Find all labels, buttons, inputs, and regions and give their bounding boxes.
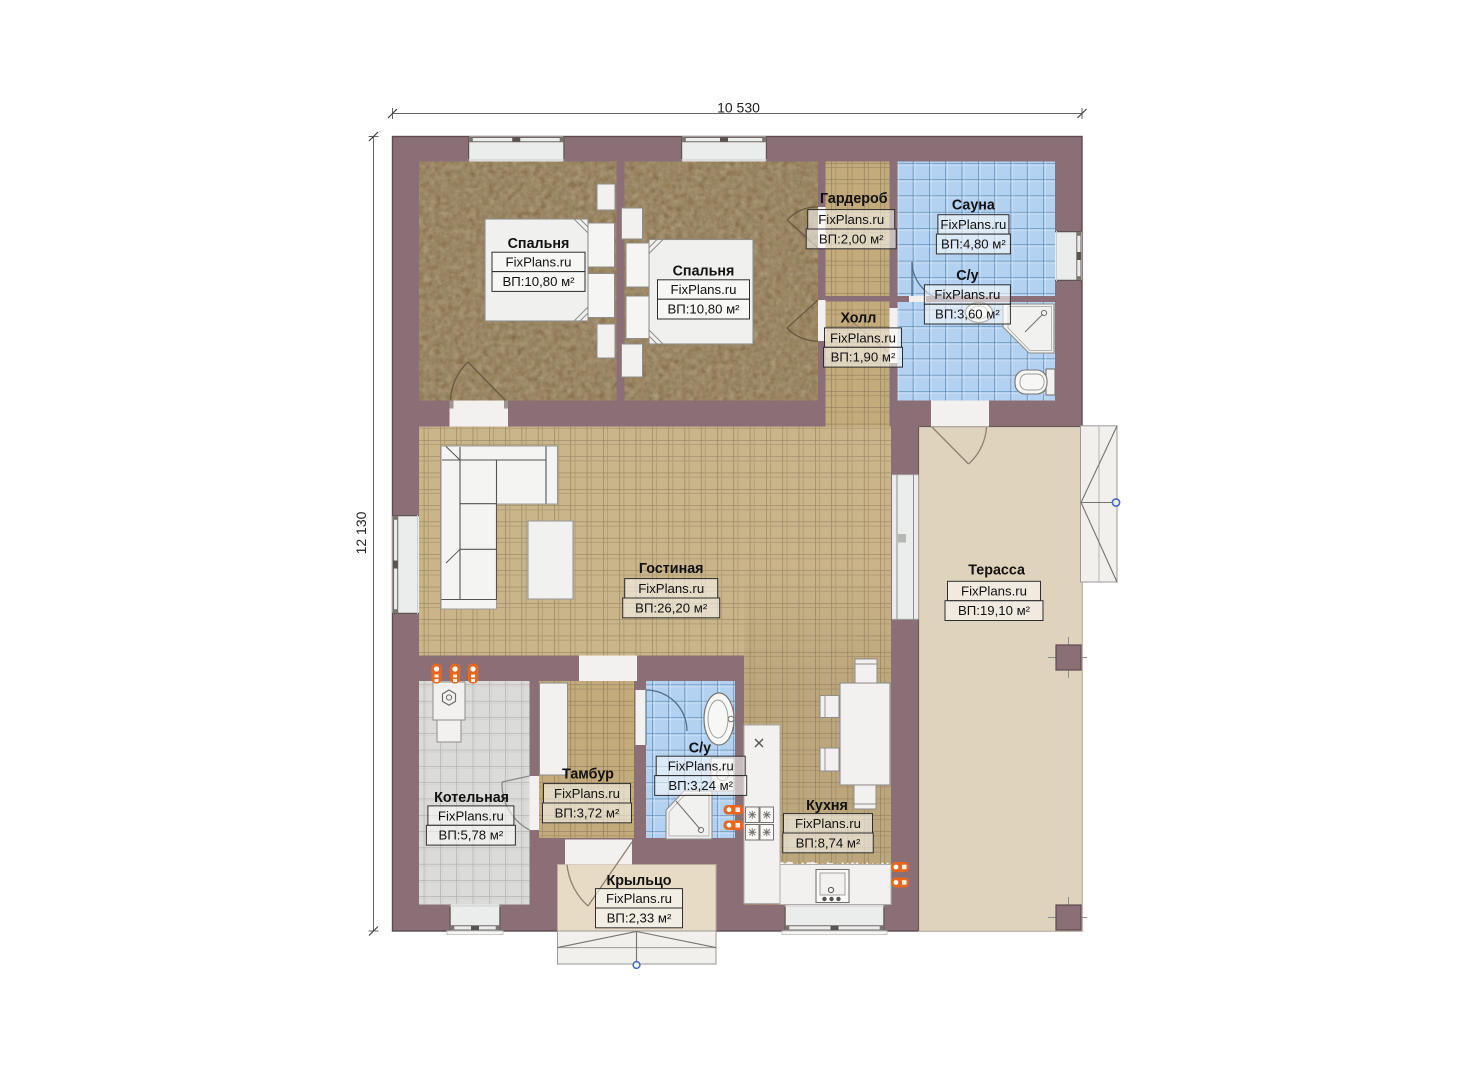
svg-text:ВП:3,72 м²: ВП:3,72 м² bbox=[555, 805, 620, 820]
svg-text:Сауна: Сауна bbox=[952, 197, 996, 213]
svg-text:С/у: С/у bbox=[956, 268, 978, 284]
svg-text:Спальня: Спальня bbox=[673, 263, 735, 279]
svg-text:Гардероб: Гардероб bbox=[820, 191, 888, 207]
svg-text:FixPlans.ru: FixPlans.ru bbox=[961, 584, 1027, 599]
svg-text:Холл: Холл bbox=[840, 311, 876, 327]
svg-text:ВП:2,33 м²: ВП:2,33 м² bbox=[607, 910, 672, 925]
svg-text:ВП:3,60 м²: ВП:3,60 м² bbox=[935, 307, 1000, 322]
svg-text:FixPlans.ru: FixPlans.ru bbox=[795, 816, 861, 831]
svg-text:Гостиная: Гостиная bbox=[639, 561, 704, 577]
svg-text:ВП:2,00 м²: ВП:2,00 м² bbox=[819, 231, 884, 246]
svg-text:FixPlans.ru: FixPlans.ru bbox=[668, 759, 734, 774]
svg-text:FixPlans.ru: FixPlans.ru bbox=[554, 786, 620, 801]
svg-text:Крыльцо: Крыльцо bbox=[606, 873, 671, 889]
svg-text:12 130: 12 130 bbox=[353, 511, 369, 554]
svg-text:ВП:8,74 м²: ВП:8,74 м² bbox=[796, 835, 861, 850]
svg-text:FixPlans.ru: FixPlans.ru bbox=[606, 891, 672, 906]
svg-text:Тамбур: Тамбур bbox=[562, 766, 614, 782]
svg-text:ВП:19,10 м²: ВП:19,10 м² bbox=[958, 603, 1031, 618]
svg-text:ВП:10,80 м²: ВП:10,80 м² bbox=[667, 302, 740, 317]
svg-text:С/у: С/у bbox=[689, 741, 711, 757]
svg-text:FixPlans.ru: FixPlans.ru bbox=[506, 255, 572, 270]
svg-text:ВП:5,78 м²: ВП:5,78 м² bbox=[439, 828, 504, 843]
svg-text:Спальня: Спальня bbox=[508, 236, 570, 252]
svg-text:ВП:10,80 м²: ВП:10,80 м² bbox=[502, 274, 575, 289]
svg-text:FixPlans.ru: FixPlans.ru bbox=[438, 808, 504, 823]
svg-text:FixPlans.ru: FixPlans.ru bbox=[818, 212, 884, 227]
svg-text:10 530: 10 530 bbox=[717, 100, 760, 116]
svg-text:Терасса: Терасса bbox=[968, 563, 1026, 579]
svg-text:ВП:3,24 м²: ВП:3,24 м² bbox=[668, 778, 733, 793]
svg-text:FixPlans.ru: FixPlans.ru bbox=[940, 217, 1006, 232]
svg-text:FixPlans.ru: FixPlans.ru bbox=[638, 581, 704, 596]
svg-text:FixPlans.ru: FixPlans.ru bbox=[934, 287, 1000, 302]
svg-text:ВП:4,80 м²: ВП:4,80 м² bbox=[941, 236, 1006, 251]
svg-text:FixPlans.ru: FixPlans.ru bbox=[671, 282, 737, 297]
svg-text:Кухня: Кухня bbox=[806, 798, 848, 814]
svg-text:ВП:26,20 м²: ВП:26,20 м² bbox=[635, 600, 708, 615]
svg-text:FixPlans.ru: FixPlans.ru bbox=[830, 330, 896, 345]
svg-text:Котельная: Котельная bbox=[434, 790, 509, 806]
svg-text:ВП:1,90 м²: ВП:1,90 м² bbox=[831, 350, 896, 365]
